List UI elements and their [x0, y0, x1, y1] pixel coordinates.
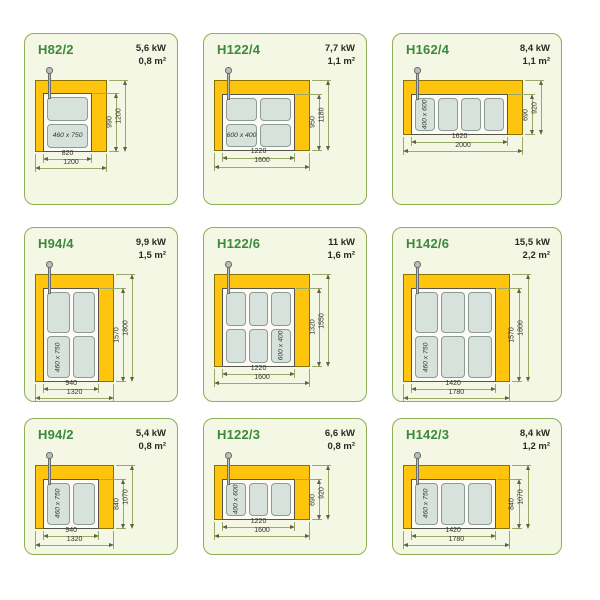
panel-header: H142/38,4 kW1,2 m²: [393, 419, 561, 454]
catalog-row: H94/49,9 kW1,5 m²460 x 75094013201570180…: [24, 227, 600, 402]
dimension-arrow: [326, 80, 330, 85]
heating-plate: [226, 329, 246, 363]
heating-plate: [461, 98, 481, 131]
dimension-line: [328, 278, 329, 363]
dimension-arrow: [109, 396, 114, 400]
dimension-value: 940: [43, 527, 99, 534]
model-title: H122/6: [217, 236, 260, 251]
heating-plate: [438, 98, 458, 131]
power-rating: 11 kW: [328, 236, 355, 249]
dimension-diagram: 600 x 400122016009501180: [214, 80, 334, 171]
heating-plate: [441, 483, 465, 525]
dimension-arrow: [530, 130, 534, 135]
dimension-value: 1600: [214, 527, 310, 534]
dimension-value: 1220: [222, 148, 295, 155]
dimension-value: 950: [309, 116, 316, 128]
dimension-arrow: [517, 288, 521, 293]
heating-plate: [441, 292, 465, 334]
heating-plate: 400 x 600: [415, 98, 435, 131]
dimension-arrow: [35, 396, 40, 400]
dimension-value: 1600: [214, 374, 310, 381]
power-rating: 5,6 kW: [136, 42, 166, 55]
dimension-value: 920: [318, 487, 325, 499]
power-rating: 7,7 kW: [325, 42, 355, 55]
dimension-line: [132, 278, 133, 378]
dimension-line: [218, 383, 306, 384]
power-rating: 6,6 kW: [325, 427, 355, 440]
dimension-arrow: [526, 377, 530, 382]
dimension-diagram: 460 x 750142017808401070: [403, 465, 534, 549]
dimension-arrow: [326, 274, 330, 279]
dimension-arrow: [305, 165, 310, 169]
dimension-arrow: [121, 479, 125, 484]
dimension-line: [407, 398, 506, 399]
dimension-value: 1320: [35, 389, 114, 396]
chimney-cap-icon: [46, 452, 53, 459]
dimension-diagram: 400 x 60016202000690920: [403, 80, 547, 155]
dimension-value: 690: [309, 494, 316, 506]
model-title: H82/2: [38, 42, 74, 57]
dimension-arrow: [123, 80, 127, 85]
chimney-cap-icon: [225, 452, 232, 459]
chimney-cap-icon: [414, 452, 421, 459]
surface-area: 0,8 m²: [136, 55, 166, 68]
dimension-arrow: [35, 166, 40, 170]
surface-area: 1,2 m²: [520, 440, 550, 453]
dimension-value: 1320: [309, 320, 316, 336]
dimension-arrow: [114, 93, 118, 98]
dimension-arrow: [539, 130, 543, 135]
dimension-arrow: [317, 146, 321, 151]
dimension-value: 1570: [509, 327, 516, 343]
dimension-arrow: [326, 362, 330, 367]
chimney-cap-icon: [46, 67, 53, 74]
dimension-line: [407, 545, 506, 546]
dimension-arrow: [317, 362, 321, 367]
dimension-value: 1180: [318, 108, 325, 123]
chimney-pipe: [227, 456, 231, 485]
dimension-value: 1800: [518, 320, 525, 336]
dimension-value: 1320: [35, 536, 114, 543]
plate-size-label: 460 x 750: [423, 489, 430, 519]
surface-area: 0,8 m²: [325, 440, 355, 453]
power-rating: 8,4 kW: [520, 42, 550, 55]
chimney-cap-icon: [225, 261, 232, 268]
dimension-arrow: [403, 543, 408, 547]
chimney-pipe: [416, 71, 420, 100]
spec-block: 15,5 kW2,2 m²: [515, 236, 550, 263]
heating-plate: [249, 292, 269, 326]
dimension-value: 820: [43, 150, 92, 157]
heating-plate: 460 x 750: [47, 124, 88, 148]
chimney-pipe: [416, 456, 420, 485]
heating-plate: [226, 292, 246, 326]
heating-plate: [47, 97, 88, 121]
plate-size-label: 600 x 400: [278, 331, 285, 361]
heating-plate: [226, 98, 257, 121]
panel-header: H122/36,6 kW0,8 m²: [204, 419, 366, 454]
dimension-line: [528, 469, 529, 525]
dimension-arrow: [326, 465, 330, 470]
product-panel: H122/47,7 kW1,1 m²600 x 4001220160095011…: [203, 33, 367, 205]
heating-plate: [47, 292, 70, 334]
model-title: H142/6: [406, 236, 449, 251]
dimension-line: [39, 545, 110, 546]
dimension-value: 990: [106, 116, 113, 128]
power-rating: 8,4 kW: [520, 427, 550, 440]
chimney-cap-icon: [225, 67, 232, 74]
dimension-arrow: [214, 381, 219, 385]
model-title: H122/4: [217, 42, 260, 57]
heating-plate: [484, 98, 504, 131]
power-rating: 9,9 kW: [136, 236, 166, 249]
dimension-diagram: 400 x 60012201600690920: [214, 465, 334, 540]
heating-plate: 460 x 750: [415, 336, 439, 378]
product-panel: H142/615,5 kW2,2 m²460 x 750142017801570…: [392, 227, 562, 402]
dimension-diagram: 460 x 750940132015701800: [35, 274, 138, 402]
product-panel: H94/25,4 kW0,8 m²460 x 75094013208401070: [24, 418, 178, 555]
panel-header: H122/47,7 kW1,1 m²: [204, 34, 366, 69]
model-title: H94/2: [38, 427, 74, 442]
power-rating: 15,5 kW: [515, 236, 550, 249]
heating-plate: [468, 483, 492, 525]
dimension-arrow: [121, 524, 125, 529]
product-grid: H82/25,6 kW0,8 m²460 x 75082012009901200…: [0, 0, 600, 600]
dimension-arrow: [130, 377, 134, 382]
heating-plate: 600 x 400: [226, 124, 257, 147]
dimension-value: 1420: [411, 380, 496, 387]
dimension-value: 1200: [115, 108, 122, 124]
product-panel: H162/48,4 kW1,1 m²400 x 6001620200069092…: [392, 33, 562, 205]
dimension-arrow: [403, 149, 408, 153]
heating-plate: [468, 292, 492, 334]
dimension-arrow: [526, 524, 530, 529]
dimension-arrow: [317, 479, 321, 484]
dimension-value: 1070: [518, 489, 525, 505]
dimension-arrow: [517, 524, 521, 529]
heating-plate: [73, 483, 96, 525]
dimension-arrow: [130, 274, 134, 279]
product-panel: H82/25,6 kW0,8 m²460 x 75082012009901200: [24, 33, 178, 205]
dimension-value: 1200: [35, 159, 107, 166]
spec-block: 6,6 kW0,8 m²: [325, 427, 355, 454]
plate-size-label: 460 x 750: [55, 342, 62, 372]
model-title: H122/3: [217, 427, 260, 442]
chimney-cap-icon: [414, 261, 421, 268]
surface-area: 1,1 m²: [520, 55, 550, 68]
heating-plate: 600 x 400: [271, 329, 291, 363]
dimension-arrow: [317, 94, 321, 99]
dimension-diagram: 460 x 75094013208401070: [35, 465, 138, 549]
dimension-arrow: [109, 543, 114, 547]
dimension-arrow: [526, 274, 530, 279]
dimension-value: 1220: [222, 518, 295, 525]
dimension-arrow: [530, 94, 534, 99]
chimney-pipe: [416, 265, 420, 294]
catalog-row: H82/25,6 kW0,8 m²460 x 75082012009901200…: [24, 33, 600, 205]
dimension-value: 690: [522, 109, 529, 121]
dimension-arrow: [35, 543, 40, 547]
dimension-diagram: 460 x 75082012009901200: [35, 80, 131, 172]
dimension-value: 1600: [214, 157, 310, 164]
dimension-line: [39, 168, 103, 169]
chimney-pipe: [227, 71, 231, 100]
model-title: H142/3: [406, 427, 449, 442]
chimney-pipe: [227, 265, 231, 294]
dimension-arrow: [214, 534, 219, 538]
chimney-cap-icon: [414, 67, 421, 74]
product-panel: H142/38,4 kW1,2 m²460 x 7501420178084010…: [392, 418, 562, 555]
dimension-arrow: [102, 166, 107, 170]
panel-header: H94/25,4 kW0,8 m²: [25, 419, 177, 454]
spec-block: 5,6 kW0,8 m²: [136, 42, 166, 69]
surface-area: 1,1 m²: [325, 55, 355, 68]
heating-plate: [441, 336, 465, 378]
panel-header: H142/615,5 kW2,2 m²: [393, 228, 561, 263]
spec-block: 11 kW1,6 m²: [328, 236, 355, 263]
panel-header: H162/48,4 kW1,1 m²: [393, 34, 561, 69]
dimension-arrow: [517, 377, 521, 382]
heating-plate: [260, 124, 291, 147]
model-title: H162/4: [406, 42, 449, 57]
heating-plate: 460 x 750: [415, 483, 439, 525]
dimension-arrow: [505, 396, 510, 400]
surface-area: 2,2 m²: [515, 249, 550, 262]
product-panel: H122/611 kW1,6 m²600 x 40012201600132015…: [203, 227, 367, 402]
dimension-arrow: [526, 465, 530, 470]
dimension-value: 1620: [411, 133, 508, 140]
dimension-diagram: 460 x 7501420178015701800: [403, 274, 534, 402]
dimension-arrow: [121, 288, 125, 293]
plate-size-label: 460 x 750: [423, 342, 430, 372]
catalog-row: H94/25,4 kW0,8 m²460 x 75094013208401070…: [24, 418, 600, 555]
spec-block: 8,4 kW1,2 m²: [520, 427, 550, 454]
dimension-arrow: [214, 165, 219, 169]
heating-plate: [415, 292, 439, 334]
dimension-line: [407, 151, 519, 152]
dimension-value: 1780: [403, 536, 510, 543]
dimension-arrow: [317, 515, 321, 520]
heating-plate: [271, 292, 291, 326]
chimney-pipe: [48, 456, 52, 485]
dimension-value: 1550: [318, 313, 325, 329]
dimension-line: [328, 84, 329, 147]
dimension-value: 840: [113, 498, 120, 510]
chimney-pipe: [48, 71, 52, 99]
dimension-value: 1070: [122, 489, 129, 505]
panel-header: H122/611 kW1,6 m²: [204, 228, 366, 263]
dimension-line: [218, 536, 306, 537]
chimney-pipe: [48, 265, 52, 294]
surface-area: 1,6 m²: [328, 249, 355, 262]
plate-size-label: 460 x 750: [53, 132, 83, 139]
heating-plate: [249, 483, 269, 516]
dimension-arrow: [317, 288, 321, 293]
plate-size-label: 600 x 400: [227, 132, 257, 139]
dimension-arrow: [130, 465, 134, 470]
dimension-arrow: [518, 149, 523, 153]
dimension-arrow: [114, 147, 118, 152]
heating-plate: [249, 329, 269, 363]
dimension-arrow: [505, 543, 510, 547]
heating-plate: [73, 292, 96, 334]
dimension-arrow: [403, 396, 408, 400]
surface-area: 0,8 m²: [136, 440, 166, 453]
dimension-line: [328, 469, 329, 516]
dimension-value: 1780: [403, 389, 510, 396]
dimension-diagram: 600 x 4001220160013201550: [214, 274, 334, 387]
dimension-value: 1220: [222, 365, 295, 372]
dimension-value: 1420: [411, 527, 496, 534]
dimension-arrow: [517, 479, 521, 484]
dimension-arrow: [326, 515, 330, 520]
spec-block: 5,4 kW0,8 m²: [136, 427, 166, 454]
panel-header: H94/49,9 kW1,5 m²: [25, 228, 177, 263]
heating-plate: 400 x 600: [226, 483, 246, 516]
spec-block: 9,9 kW1,5 m²: [136, 236, 166, 263]
dimension-arrow: [130, 524, 134, 529]
power-rating: 5,4 kW: [136, 427, 166, 440]
heating-plate: [271, 483, 291, 516]
dimension-line: [132, 469, 133, 525]
dimension-value: 840: [509, 498, 516, 510]
dimension-value: 940: [43, 380, 99, 387]
dimension-arrow: [305, 534, 310, 538]
plate-size-label: 400 x 600: [421, 100, 428, 130]
dimension-line: [39, 398, 110, 399]
panel-header: H82/25,6 kW0,8 m²: [25, 34, 177, 69]
plate-size-label: 460 x 750: [55, 489, 62, 519]
dimension-value: 920: [531, 102, 538, 114]
dimension-value: 1570: [113, 327, 120, 343]
product-panel: H94/49,9 kW1,5 m²460 x 75094013201570180…: [24, 227, 178, 402]
dimension-line: [125, 84, 126, 148]
plate-size-label: 400 x 600: [232, 485, 239, 515]
heating-plate: 460 x 750: [47, 336, 70, 378]
dimension-arrow: [123, 147, 127, 152]
spec-block: 8,4 kW1,1 m²: [520, 42, 550, 69]
dimension-value: 1800: [122, 320, 129, 336]
dimension-arrow: [121, 377, 125, 382]
spec-block: 7,7 kW1,1 m²: [325, 42, 355, 69]
surface-area: 1,5 m²: [136, 249, 166, 262]
dimension-line: [528, 278, 529, 378]
dimension-arrow: [539, 80, 543, 85]
heating-plate: [260, 98, 291, 121]
model-title: H94/4: [38, 236, 74, 251]
dimension-line: [218, 167, 306, 168]
heating-plate: [73, 336, 96, 378]
product-panel: H122/36,6 kW0,8 m²400 x 6001220160069092…: [203, 418, 367, 555]
heating-plate: 460 x 750: [47, 483, 70, 525]
chimney-cap-icon: [46, 261, 53, 268]
dimension-line: [541, 84, 542, 131]
heating-plate: [468, 336, 492, 378]
dimension-value: 2000: [403, 142, 523, 149]
dimension-arrow: [326, 146, 330, 151]
dimension-arrow: [305, 381, 310, 385]
